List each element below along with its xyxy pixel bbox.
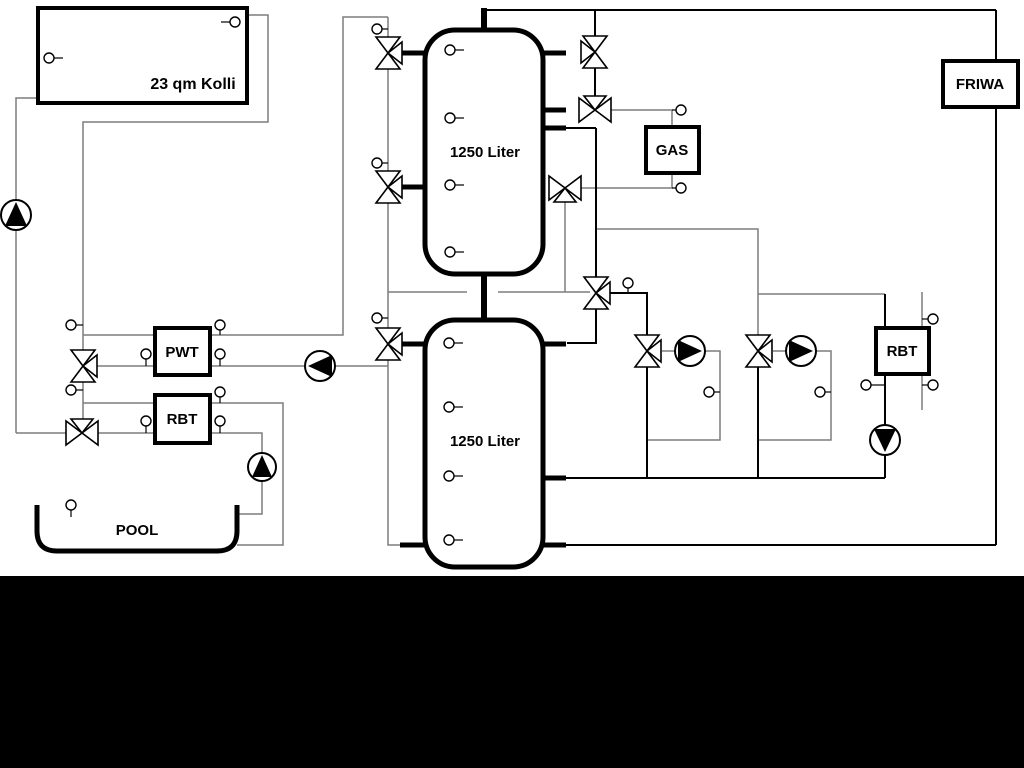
pipe-solar-left-riser <box>16 98 44 433</box>
valve-charge-lower <box>376 328 402 360</box>
pipe-rbt-bottom-to-pool <box>16 433 262 514</box>
pipe-charge-column <box>388 17 402 545</box>
sensor-port <box>215 320 225 335</box>
pwt-label: PWT <box>165 344 198 361</box>
pump-pwt-secondary <box>305 351 335 381</box>
pipe-gas-return <box>580 173 672 188</box>
sensor-port <box>372 24 388 34</box>
sensor-port <box>704 387 720 397</box>
letterbox-bottom <box>0 576 1024 768</box>
valve-heating-branch-1 <box>635 335 661 367</box>
tank-lower-label: 1250 Liter <box>450 433 520 450</box>
sensor-port <box>672 105 686 115</box>
sensor-port <box>141 349 151 366</box>
sensor-port <box>672 183 686 193</box>
sensor-port <box>215 387 225 403</box>
valve-gas-return <box>549 176 581 202</box>
sensor-port <box>372 158 388 168</box>
sensor-port <box>215 349 225 366</box>
pipe-gas-flow <box>610 110 672 127</box>
pool-label: POOL <box>116 522 159 539</box>
pump-heating-1 <box>675 336 705 366</box>
hydraulic-schematic: 23 qm Kolli 1250 Liter 1250 Liter PWT RB… <box>0 0 1024 768</box>
valve-pwt-mixing <box>71 350 97 382</box>
valve-charge-upper-top <box>376 37 402 69</box>
sensor-port <box>66 500 76 517</box>
rbt-left-label: RBT <box>167 411 198 428</box>
pipe-valve4-drop <box>567 308 596 343</box>
pipe-valve4-riser <box>566 128 596 278</box>
valve-dhw-top <box>581 36 607 68</box>
tank-upper-label: 1250 Liter <box>450 144 520 161</box>
valve-heating-branch-2 <box>746 335 772 367</box>
sensor-port <box>372 313 388 323</box>
sensor-port <box>861 380 885 390</box>
solar-collector-label: 23 qm Kolli <box>150 76 235 93</box>
sensor-port <box>922 314 938 324</box>
rbt-right-label: RBT <box>887 343 918 360</box>
sensor-port <box>623 278 633 293</box>
valve-midline <box>584 277 610 309</box>
valve-gas-flow <box>579 96 611 122</box>
valve-pool-mixing <box>66 419 98 445</box>
pump-solar <box>1 200 31 230</box>
pump-heating-2 <box>786 336 816 366</box>
pipe-heating-header <box>596 229 758 336</box>
sensor-port <box>922 380 938 390</box>
sensor-port <box>815 387 831 397</box>
sensor-port <box>215 416 225 433</box>
sensor-port <box>66 320 83 330</box>
schematic-canvas: 23 qm Kolli 1250 Liter 1250 Liter PWT RB… <box>0 0 1024 576</box>
friwa-label: FRIWA <box>956 76 1004 93</box>
sensor-port <box>141 416 151 433</box>
pump-pool <box>248 453 276 481</box>
valve-charge-upper-bottom <box>376 171 402 203</box>
sensor-port <box>66 385 83 395</box>
gas-label: GAS <box>656 142 689 159</box>
pipes-primary <box>484 10 996 545</box>
pump-rbt-right <box>870 425 900 455</box>
